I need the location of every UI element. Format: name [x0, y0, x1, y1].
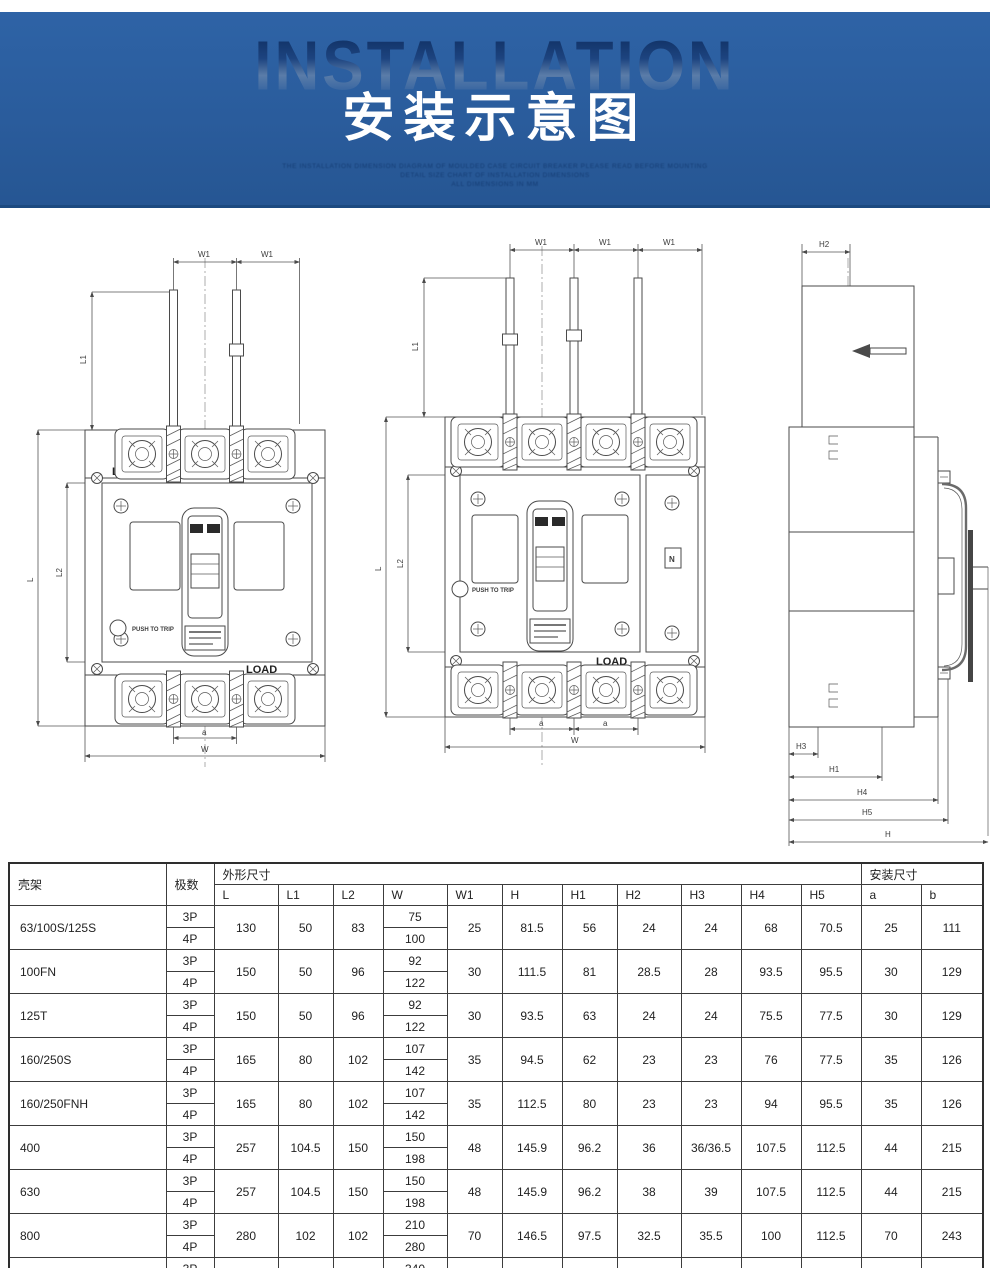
- svg-text:W1: W1: [663, 238, 676, 247]
- busbars: [170, 290, 244, 430]
- cell-a: 35: [861, 1082, 921, 1126]
- cell-W-3p: 150: [383, 1126, 447, 1148]
- cell-a: 25: [861, 906, 921, 950]
- cell-W-3p: 210: [383, 1214, 447, 1236]
- cell-W-4p: 142: [383, 1104, 447, 1126]
- cell-W-3p: 92: [383, 950, 447, 972]
- cover-screw: [308, 473, 319, 484]
- face-screw: [615, 622, 629, 636]
- face-screw: [286, 499, 300, 513]
- dimension-l: L: [26, 430, 85, 726]
- face-screw: [114, 499, 128, 513]
- cell-b: 126: [921, 1038, 983, 1082]
- dimension-h4: H4: [789, 717, 938, 804]
- banner: INSTALLATION 安装示意图 THE INSTALLATION DIME…: [0, 12, 990, 208]
- cell-L1: 131: [278, 1258, 333, 1268]
- cell-b: 129: [921, 994, 983, 1038]
- cell-L: 165: [214, 1038, 278, 1082]
- cell-H1: 56: [562, 906, 617, 950]
- cell-a: 35: [861, 1038, 921, 1082]
- header-dim-b: b: [921, 885, 983, 906]
- cover-screw: [92, 664, 103, 675]
- cell-L2: 102: [333, 1082, 383, 1126]
- svg-text:L1: L1: [411, 342, 420, 351]
- svg-text:L: L: [26, 577, 35, 582]
- svg-text:W: W: [201, 745, 209, 754]
- header-dim-L1: L1: [278, 885, 333, 906]
- cell-H4: 100: [741, 1214, 801, 1258]
- cell-W1: 35: [447, 1038, 502, 1082]
- header-dim-W1: W1: [447, 885, 502, 906]
- svg-text:W: W: [571, 736, 579, 745]
- face-screw: [286, 632, 300, 646]
- cell-H3: 36/36.5: [681, 1126, 741, 1170]
- cell-H3: 23: [681, 1038, 741, 1082]
- terminal: [178, 429, 232, 479]
- svg-text:L2: L2: [55, 568, 64, 577]
- cell-W-4p: 198: [383, 1148, 447, 1170]
- cell-L1: 50: [278, 906, 333, 950]
- table-header: 壳架 极数 外形尺寸 安装尺寸 L L1 L2 W W1 H H1 H2 H3 …: [9, 863, 983, 906]
- dimension-h: H: [789, 830, 988, 842]
- cell-H5: 112.5: [801, 1126, 861, 1170]
- face-screw: [615, 492, 629, 506]
- svg-text:H5: H5: [862, 808, 873, 817]
- rating-window: [130, 522, 180, 590]
- cell-H4: 140: [741, 1258, 801, 1268]
- cell-poles-4p: 4P: [166, 1060, 214, 1082]
- svg-text:W1: W1: [599, 238, 612, 247]
- cell-L2: 96: [333, 994, 383, 1038]
- cell-H: 145.9: [502, 1126, 562, 1170]
- cell-W1: 35: [447, 1082, 502, 1126]
- cell-L: 165: [214, 1082, 278, 1126]
- n-pole-screw: [665, 496, 679, 510]
- cell-a: 44: [861, 1170, 921, 1214]
- svg-text:H3: H3: [796, 742, 807, 751]
- terminal: [451, 417, 505, 467]
- cell-L1: 104.5: [278, 1170, 333, 1214]
- cell-L2: 97.5: [333, 1258, 383, 1268]
- cell-W-4p: 280: [383, 1236, 447, 1258]
- lug-strip: [567, 662, 581, 718]
- cell-frame: 800: [9, 1214, 166, 1258]
- cell-H5: 70.5: [801, 906, 861, 950]
- svg-text:a: a: [539, 719, 544, 728]
- fine-print-line-1: THE INSTALLATION DIMENSION DIAGRAM OF MO…: [0, 162, 990, 171]
- cell-H3: 24: [681, 906, 741, 950]
- table-row: 12503P40013197.534070177.51243250140152.…: [9, 1258, 983, 1268]
- cell-W1: 70: [447, 1214, 502, 1258]
- cell-H4: 75.5: [741, 994, 801, 1038]
- header-dim-H1: H1: [562, 885, 617, 906]
- header-dim-H3: H3: [681, 885, 741, 906]
- cell-a: 70: [861, 1258, 921, 1268]
- cell-H2: 32.5: [617, 1214, 681, 1258]
- cell-H2: 38: [617, 1170, 681, 1214]
- cell-frame: 63/100S/125S: [9, 906, 166, 950]
- table-row: 125T3P1505096923093.563242475.577.530129: [9, 994, 983, 1016]
- terminal: [241, 429, 295, 479]
- cell-H1: 97.5: [562, 1214, 617, 1258]
- side-view-drawing: H2: [742, 222, 990, 847]
- cell-poles-3p: 3P: [166, 1126, 214, 1148]
- header-poles: 极数: [166, 863, 214, 906]
- cell-W1: 48: [447, 1126, 502, 1170]
- cell-H4: 93.5: [741, 950, 801, 994]
- svg-text:a: a: [202, 728, 207, 737]
- cell-W1: 48: [447, 1170, 502, 1214]
- terminal: [115, 674, 169, 724]
- breaker-body-3p: PUSH TO TRIP LINE LOAD: [85, 426, 325, 727]
- cell-W1: 25: [447, 906, 502, 950]
- cell-L2: 150: [333, 1170, 383, 1214]
- cell-W-3p: 92: [383, 994, 447, 1016]
- svg-text:W1: W1: [535, 238, 548, 247]
- cell-H4: 68: [741, 906, 801, 950]
- cell-L: 150: [214, 994, 278, 1038]
- header-dim-H2: H2: [617, 885, 681, 906]
- cell-poles-4p: 4P: [166, 1148, 214, 1170]
- header-dim-H4: H4: [741, 885, 801, 906]
- trip-button: [452, 581, 468, 597]
- lug-strip: [503, 414, 517, 470]
- rating-window: [582, 515, 628, 583]
- svg-text:PUSH TO TRIP: PUSH TO TRIP: [472, 588, 514, 594]
- terminal: [515, 417, 569, 467]
- cell-poles-3p: 3P: [166, 1214, 214, 1236]
- lug-strip: [631, 662, 645, 718]
- cell-H1: 81: [562, 950, 617, 994]
- header-install-group: 安装尺寸: [861, 863, 983, 885]
- terminal: [241, 674, 295, 724]
- cell-W-4p: 142: [383, 1060, 447, 1082]
- cell-poles-4p: 4P: [166, 1192, 214, 1214]
- cell-H5: 112.5: [801, 1170, 861, 1214]
- dimension-h2: H2: [802, 240, 850, 286]
- cell-poles-3p: 3P: [166, 1258, 214, 1268]
- cell-L1: 104.5: [278, 1126, 333, 1170]
- dimension-l: L: [374, 417, 445, 717]
- cell-H: 112.5: [502, 1082, 562, 1126]
- trip-button: [110, 620, 126, 636]
- terminal: [579, 665, 633, 715]
- toggle-switch: [182, 508, 228, 656]
- cell-H1: 124: [562, 1258, 617, 1268]
- cell-H: 93.5: [502, 994, 562, 1038]
- cell-b: 215: [921, 1170, 983, 1214]
- terminal: [579, 417, 633, 467]
- terminal: [643, 417, 697, 467]
- cell-L: 150: [214, 950, 278, 994]
- cell-H3: 28: [681, 950, 741, 994]
- cell-a: 30: [861, 994, 921, 1038]
- header-dim-a: a: [861, 885, 921, 906]
- cell-b: 111: [921, 906, 983, 950]
- header-dim-L: L: [214, 885, 278, 906]
- cell-H5: 77.5: [801, 994, 861, 1038]
- svg-text:L: L: [374, 566, 383, 571]
- busbars: [503, 278, 643, 417]
- cell-L2: 102: [333, 1038, 383, 1082]
- cell-H4: 76: [741, 1038, 801, 1082]
- cell-frame: 100FN: [9, 950, 166, 994]
- toggle-side-profile: [938, 558, 954, 594]
- lug-strip: [503, 662, 517, 718]
- terminal: [178, 674, 232, 724]
- dimension-h3: H3: [789, 727, 818, 846]
- cell-H3: 39: [681, 1170, 741, 1214]
- lug-strip: [230, 426, 244, 482]
- svg-text:PUSH TO TRIP: PUSH TO TRIP: [132, 627, 174, 633]
- front-view-4p-drawing: W1 W1 W1 L1 L L2: [368, 226, 718, 782]
- cell-H4: 107.5: [741, 1126, 801, 1170]
- terminal: [643, 665, 697, 715]
- cell-L1: 80: [278, 1038, 333, 1082]
- cell-W-4p: 122: [383, 1016, 447, 1038]
- cell-L: 280: [214, 1214, 278, 1258]
- svg-text:H: H: [885, 830, 891, 839]
- table-row: 100FN3P15050969230111.58128.52893.595.53…: [9, 950, 983, 972]
- dimension-l1: L1: [79, 292, 170, 430]
- cell-L2: 83: [333, 906, 383, 950]
- terminal: [515, 665, 569, 715]
- page-title: 安装示意图: [0, 92, 990, 146]
- face-screw: [471, 492, 485, 506]
- cell-H5: 95.5: [801, 950, 861, 994]
- cell-L1: 102: [278, 1214, 333, 1258]
- svg-text:W1: W1: [198, 250, 211, 259]
- cell-frame: 160/250FNH: [9, 1082, 166, 1126]
- cell-H3: 50: [681, 1258, 741, 1268]
- lug-strip: [167, 671, 181, 727]
- dimension-spec-table: 壳架 极数 外形尺寸 安装尺寸 L L1 L2 W W1 H H1 H2 H3 …: [8, 862, 984, 1268]
- lug-strip: [631, 414, 645, 470]
- cell-H3: 23: [681, 1082, 741, 1126]
- cell-poles-3p: 3P: [166, 994, 214, 1016]
- cell-W1: 30: [447, 950, 502, 994]
- cell-poles-4p: 4P: [166, 1236, 214, 1258]
- svg-text:H2: H2: [819, 240, 830, 249]
- cell-b: 215: [921, 1126, 983, 1170]
- cell-a: 44: [861, 1126, 921, 1170]
- lug-strip: [230, 671, 244, 727]
- cell-L2: 150: [333, 1126, 383, 1170]
- cell-frame: 125T: [9, 994, 166, 1038]
- dimension-w1: W1 W1 W1: [510, 238, 702, 415]
- lug-strip: [167, 426, 181, 482]
- cell-W1: 30: [447, 994, 502, 1038]
- table-row: 6303P257104.515015048145.996.23839107.51…: [9, 1170, 983, 1192]
- header-dim-H: H: [502, 885, 562, 906]
- cell-L1: 80: [278, 1082, 333, 1126]
- cell-L2: 96: [333, 950, 383, 994]
- dimension-a: a: [174, 727, 237, 744]
- cell-W-3p: 107: [383, 1038, 447, 1060]
- cell-L1: 50: [278, 950, 333, 994]
- page: INSTALLATION 安装示意图 THE INSTALLATION DIME…: [0, 0, 990, 1268]
- cell-poles-4p: 4P: [166, 1016, 214, 1038]
- cell-H1: 96.2: [562, 1126, 617, 1170]
- cell-H5: 95.5: [801, 1082, 861, 1126]
- cell-H: 145.9: [502, 1170, 562, 1214]
- cell-H5: 77.5: [801, 1038, 861, 1082]
- cell-H4: 94: [741, 1082, 801, 1126]
- svg-text:L1: L1: [79, 355, 88, 364]
- cell-H2: 23: [617, 1038, 681, 1082]
- cell-W-3p: 150: [383, 1170, 447, 1192]
- terminal: [115, 429, 169, 479]
- din-rail: [968, 530, 973, 682]
- cell-L2: 102: [333, 1214, 383, 1258]
- cover-screw: [92, 473, 103, 484]
- cell-H2: 28.5: [617, 950, 681, 994]
- header-dim-L2: L2: [333, 885, 383, 906]
- cell-H1: 96.2: [562, 1170, 617, 1214]
- cell-H3: 35.5: [681, 1214, 741, 1258]
- cell-frame: 160/250S: [9, 1038, 166, 1082]
- cover-screw: [308, 664, 319, 675]
- face-screw: [471, 622, 485, 636]
- cell-H: 94.5: [502, 1038, 562, 1082]
- dimension-a: a a: [510, 718, 638, 735]
- cell-frame: 630: [9, 1170, 166, 1214]
- svg-text:W1: W1: [261, 250, 274, 259]
- cell-poles-3p: 3P: [166, 1170, 214, 1192]
- table-row: 8003P28010210221070146.597.532.535.51001…: [9, 1214, 983, 1236]
- svg-text:a: a: [603, 719, 608, 728]
- cell-frame: 1250: [9, 1258, 166, 1268]
- cell-H2: 24: [617, 994, 681, 1038]
- cell-b: 270: [921, 1258, 983, 1268]
- cell-H1: 80: [562, 1082, 617, 1126]
- cell-L: 130: [214, 906, 278, 950]
- cell-L: 257: [214, 1126, 278, 1170]
- svg-text:N: N: [669, 555, 675, 564]
- cell-W-3p: 75: [383, 906, 447, 928]
- toggle-switch: [527, 501, 573, 651]
- svg-text:H4: H4: [857, 788, 868, 797]
- cell-W-4p: 122: [383, 972, 447, 994]
- header-outline-group: 外形尺寸: [214, 863, 861, 885]
- table-body: 63/100S/125S3P1305083752581.55624246870.…: [9, 906, 983, 1268]
- cell-W1: 70: [447, 1258, 502, 1268]
- lug-strip: [567, 414, 581, 470]
- cell-poles-3p: 3P: [166, 950, 214, 972]
- table-row: 160/250S3P165801021073594.56223237677.53…: [9, 1038, 983, 1060]
- cell-H: 177.5: [502, 1258, 562, 1268]
- table-row: 4003P257104.515015048145.996.23636/36.51…: [9, 1126, 983, 1148]
- cell-W-4p: 198: [383, 1192, 447, 1214]
- body-outline: [789, 427, 914, 727]
- cell-H1: 62: [562, 1038, 617, 1082]
- cell-b: 243: [921, 1214, 983, 1258]
- cell-H: 111.5: [502, 950, 562, 994]
- cell-poles-4p: 4P: [166, 1104, 214, 1126]
- cell-H3: 24: [681, 994, 741, 1038]
- svg-text:L2: L2: [396, 559, 405, 568]
- cell-L: 257: [214, 1170, 278, 1214]
- cell-H2: 24: [617, 906, 681, 950]
- cell-H: 81.5: [502, 906, 562, 950]
- dimension-w: W: [445, 717, 705, 753]
- cell-W-4p: 100: [383, 928, 447, 950]
- cell-b: 126: [921, 1082, 983, 1126]
- header-dim-W: W: [383, 885, 447, 906]
- header-frame: 壳架: [9, 863, 166, 906]
- n-pole-screw: [665, 626, 679, 640]
- cell-poles-3p: 3P: [166, 1038, 214, 1060]
- banner-fine-print: THE INSTALLATION DIMENSION DIAGRAM OF MO…: [0, 162, 990, 189]
- handle-extension: [802, 286, 914, 427]
- dimension-l1: L1: [411, 278, 506, 417]
- cell-H1: 63: [562, 994, 617, 1038]
- cell-H5: 152.5: [801, 1258, 861, 1268]
- cell-H4: 107.5: [741, 1170, 801, 1214]
- terminal: [451, 665, 505, 715]
- cell-H: 146.5: [502, 1214, 562, 1258]
- table-row: 160/250FNH3P1658010210735112.58023239495…: [9, 1082, 983, 1104]
- rating-window: [234, 522, 284, 590]
- cell-poles-4p: 4P: [166, 928, 214, 950]
- table-row: 63/100S/125S3P1305083752581.55624246870.…: [9, 906, 983, 928]
- cell-a: 70: [861, 1214, 921, 1258]
- cell-L: 400: [214, 1258, 278, 1268]
- cell-W-3p: 107: [383, 1082, 447, 1104]
- cell-poles-3p: 3P: [166, 1082, 214, 1104]
- cell-H2: 36: [617, 1126, 681, 1170]
- cell-poles-4p: 4P: [166, 972, 214, 994]
- cell-H2: 32: [617, 1258, 681, 1268]
- rating-window: [472, 515, 518, 583]
- svg-text:H1: H1: [829, 765, 840, 774]
- cell-frame: 400: [9, 1126, 166, 1170]
- cell-H5: 112.5: [801, 1214, 861, 1258]
- cell-W-3p: 340: [383, 1258, 447, 1268]
- header-dim-H5: H5: [801, 885, 861, 906]
- fine-print-line-3: ALL DIMENSIONS IN MM: [0, 180, 990, 189]
- cell-H2: 23: [617, 1082, 681, 1126]
- cell-L1: 50: [278, 994, 333, 1038]
- front-view-3p-drawing: W1 W1 L1 L L2: [22, 232, 357, 777]
- side-body: [789, 286, 988, 836]
- cell-a: 30: [861, 950, 921, 994]
- breaker-body-4p: N PUSH TO TRIP LINE LOAD: [445, 414, 705, 718]
- fine-print-line-2: DETAIL SIZE CHART OF INSTALLATION DIMENS…: [0, 171, 990, 180]
- cell-poles-3p: 3P: [166, 906, 214, 928]
- cell-b: 129: [921, 950, 983, 994]
